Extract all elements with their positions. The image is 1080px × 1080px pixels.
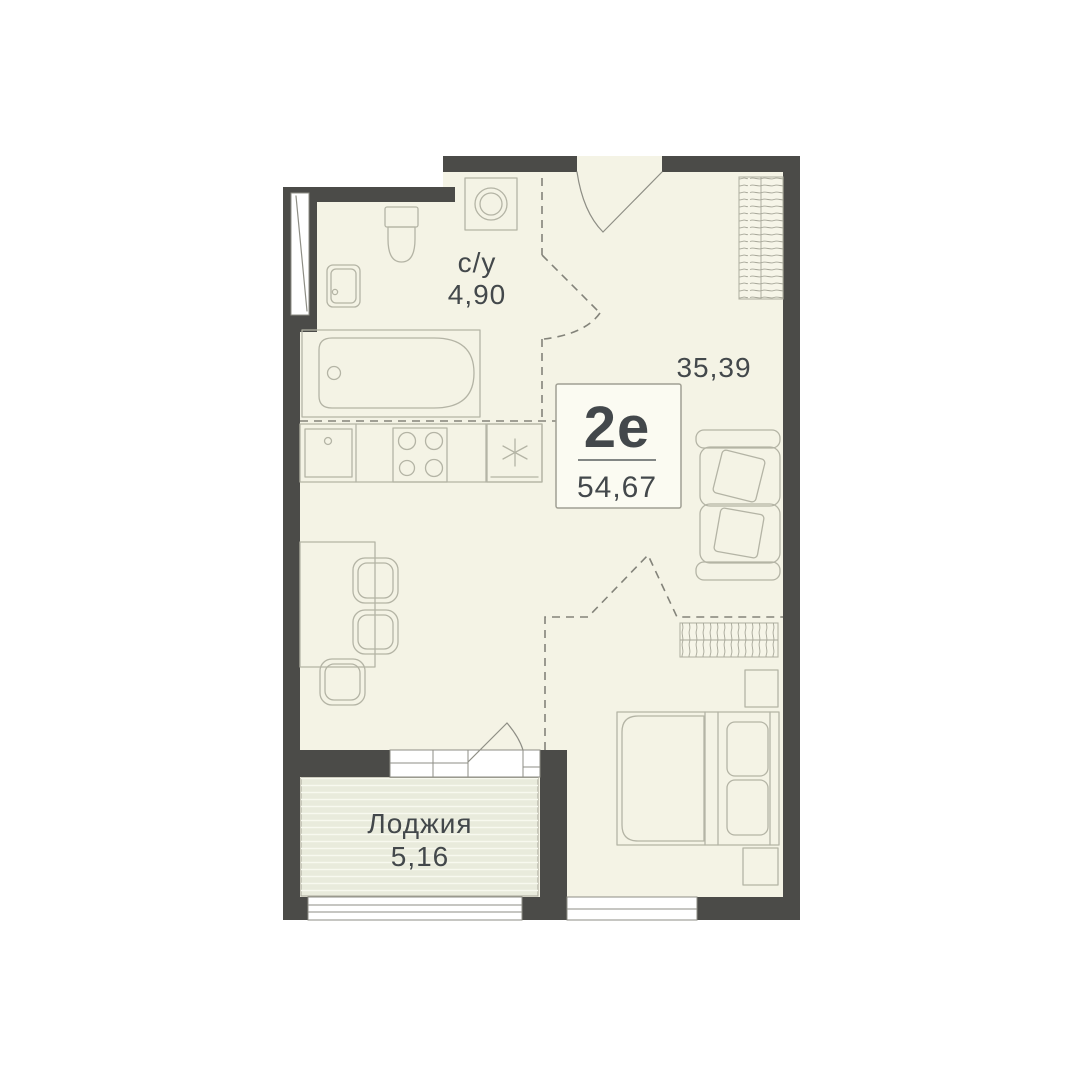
floor-plan: с/у 4,90 35,39 Лоджия 5,16 2е 54,67: [0, 0, 1080, 1080]
unit-badge: 2е 54,67: [556, 384, 681, 508]
wall-right: [783, 156, 800, 920]
loggia-area: 5,16: [391, 841, 450, 872]
bedroom-window: [567, 897, 697, 920]
entrance-door: [291, 193, 309, 315]
main-room-area: 35,39: [676, 352, 751, 383]
wardrobe-bottom: [680, 623, 778, 657]
wall-top-right: [662, 156, 800, 172]
wall-stub: [540, 750, 567, 920]
bathroom-area: 4,90: [448, 279, 507, 310]
floor-plan-canvas: с/у 4,90 35,39 Лоджия 5,16 2е 54,67: [0, 0, 1080, 1080]
loggia-label: Лоджия: [367, 808, 472, 839]
wardrobe-top: [739, 177, 783, 299]
wall-top-mid: [443, 156, 577, 172]
loggia-bottom-window: [308, 897, 522, 920]
unit-total-area: 54,67: [577, 471, 657, 504]
wall-loggia-separation: [300, 750, 390, 777]
bathroom-label: с/у: [458, 247, 497, 278]
unit-type: 2е: [584, 395, 651, 460]
